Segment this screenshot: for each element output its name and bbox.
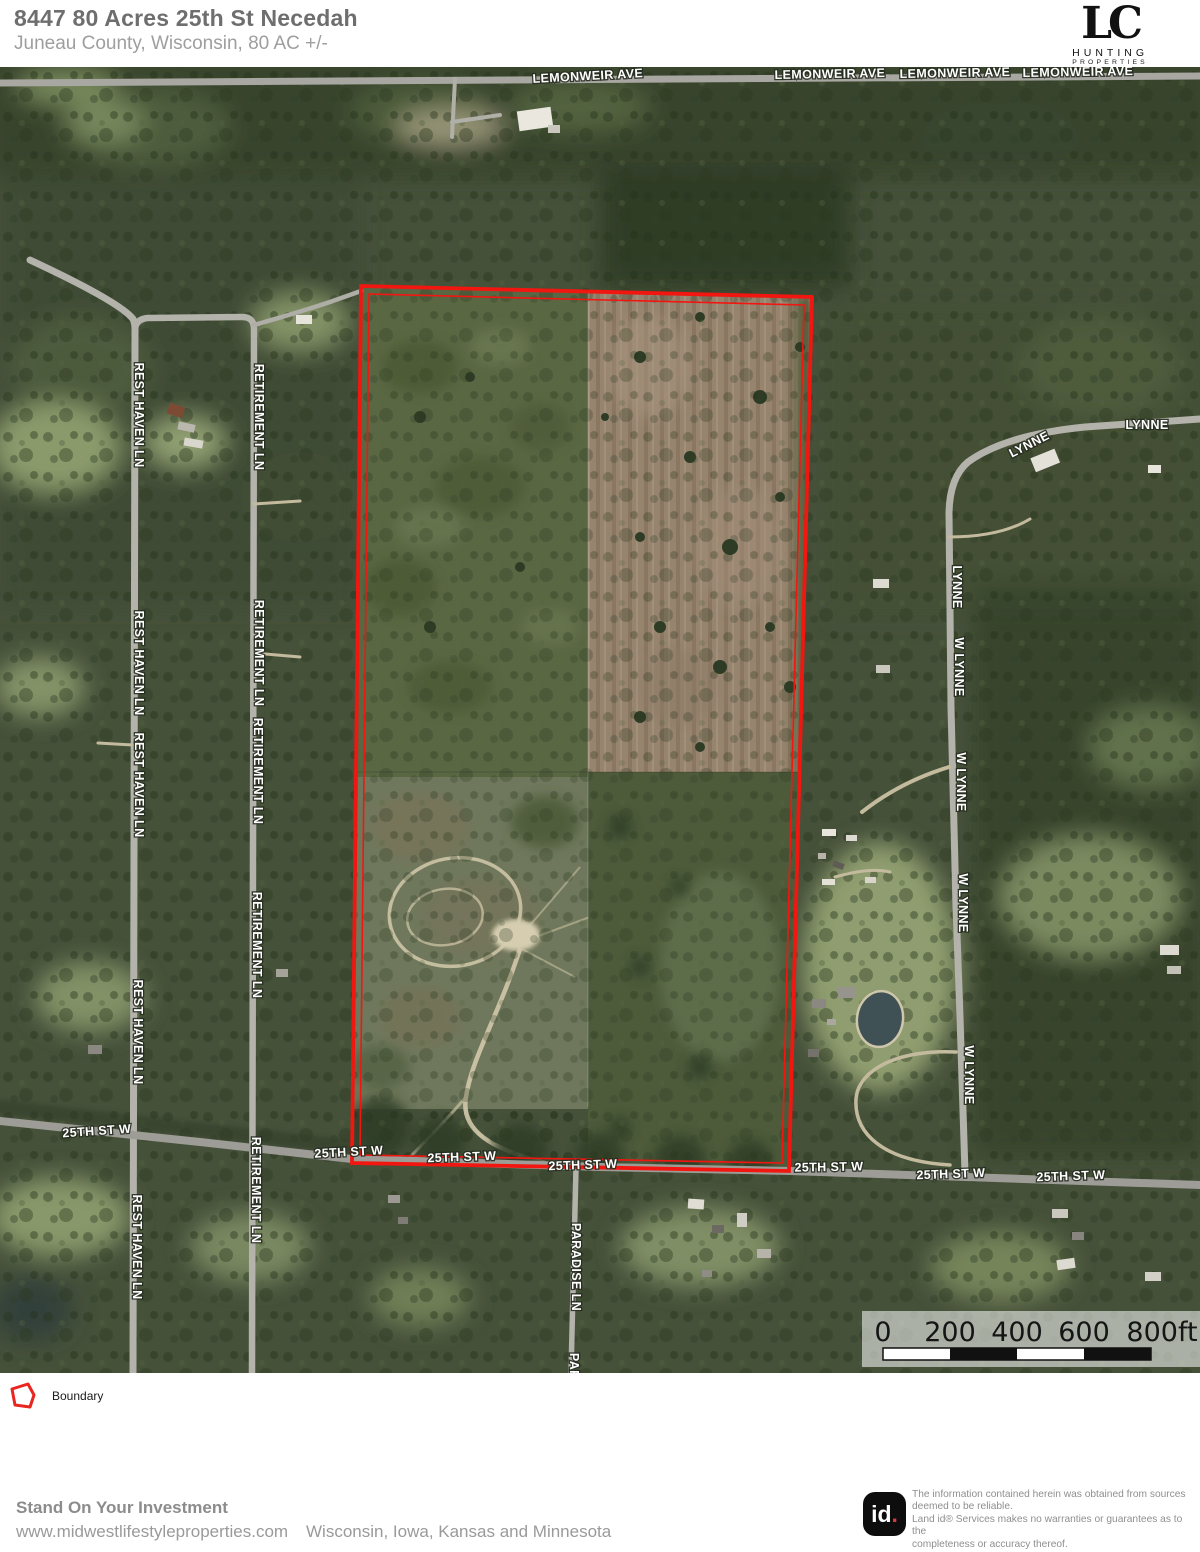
legend-label: Boundary	[52, 1389, 103, 1403]
logo-line1: HUNTING	[1072, 48, 1148, 59]
property-interior	[350, 285, 814, 1188]
road-label: W LYNNE	[962, 1045, 976, 1104]
road-label: PARADISE LN	[569, 1223, 583, 1311]
road-label: PARADISE LN	[567, 1353, 581, 1373]
scale-label-400: 400	[991, 1317, 1043, 1348]
road-label: REST HAVEN LN	[131, 980, 145, 1085]
aerial-map: 0 200 400 600 800ft LEMONWEIR AVELEMONWE…	[0, 67, 1200, 1373]
road-label: RETIREMENT LN	[250, 892, 264, 999]
header: 8447 80 Acres 25th St Necedah Juneau Cou…	[0, 0, 1200, 67]
legend-item-boundary: Boundary	[8, 1381, 103, 1411]
road-label: LYNNE	[1125, 418, 1168, 432]
logo-mark: LC	[1072, 2, 1148, 46]
road-label: REST HAVEN LN	[130, 1195, 144, 1300]
scale-label-800ft: 800ft	[1126, 1317, 1197, 1348]
land-id-logo: id.	[863, 1492, 906, 1536]
road-label: 25TH ST W	[1036, 1168, 1105, 1184]
road-label: RETIREMENT LN	[252, 600, 266, 707]
disclaimer-line: Land id® Services makes no warranties or…	[912, 1514, 1198, 1539]
footer-disclaimer: The information contained herein was obt…	[912, 1489, 1198, 1551]
road-label: RETIREMENT LN	[249, 1137, 263, 1244]
disclaimer-line: The information contained herein was obt…	[912, 1489, 1198, 1501]
page-subtitle: Juneau County, Wisconsin, 80 AC +/-	[14, 33, 328, 55]
footer-regions: Wisconsin, Iowa, Kansas and Minnesota	[306, 1522, 611, 1542]
scale-label-200: 200	[924, 1317, 976, 1348]
road-label: W LYNNE	[956, 873, 970, 932]
road-label: REST HAVEN LN	[132, 733, 146, 838]
road-label: RETIREMENT LN	[252, 364, 266, 471]
road-label: 25TH ST W	[794, 1159, 863, 1174]
road-label: W LYNNE	[954, 752, 968, 811]
footer-tagline: Stand On Your Investment	[16, 1498, 228, 1518]
logo-line2: PROPERTIES	[1072, 60, 1148, 67]
road-label: REST HAVEN LN	[132, 611, 146, 716]
scale-label-600: 600	[1058, 1317, 1110, 1348]
company-logo: LC HUNTING PROPERTIES	[1072, 2, 1148, 66]
scale-bar: 0 200 400 600 800ft	[862, 1311, 1200, 1367]
map-canvas: 0 200 400 600 800ft LEMONWEIR AVELEMONWE…	[0, 67, 1200, 1373]
scale-label-0: 0	[874, 1317, 891, 1348]
road-label: LEMONWEIR AVE	[1022, 67, 1133, 80]
boundary-swatch-icon	[8, 1381, 38, 1411]
legend: Boundary	[0, 1373, 1200, 1433]
road-label: 25TH ST W	[427, 1149, 496, 1165]
road-label: W LYNNE	[952, 637, 966, 696]
page-title: 8447 80 Acres 25th St Necedah	[14, 5, 358, 32]
road-label: REST HAVEN LN	[132, 363, 146, 468]
disclaimer-line: deemed to be reliable.	[912, 1501, 1198, 1513]
footer-website: www.midwestlifestyleproperties.com	[16, 1522, 288, 1542]
road-label: 25TH ST W	[548, 1157, 617, 1173]
road-label: LYNNE	[950, 565, 964, 608]
disclaimer-line: completeness or accuracy thereof.	[912, 1539, 1198, 1551]
road-label: LEMONWEIR AVE	[774, 67, 885, 82]
road-label: LEMONWEIR AVE	[899, 67, 1010, 81]
road-label: 25TH ST W	[916, 1166, 985, 1182]
road-label: RETIREMENT LN	[251, 718, 265, 825]
footer: Stand On Your Investment www.midwestlife…	[0, 1433, 1200, 1552]
